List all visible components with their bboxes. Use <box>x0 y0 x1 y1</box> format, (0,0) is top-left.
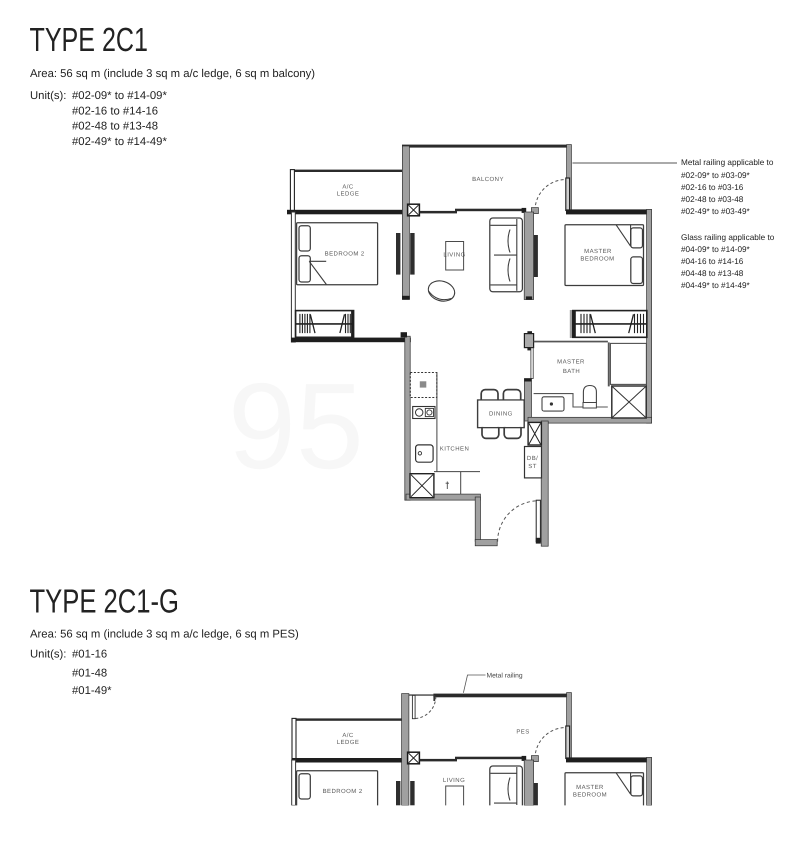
svg-text:BEDROOM 2: BEDROOM 2 <box>325 250 365 257</box>
svg-text:Unit(s):: Unit(s): <box>30 90 66 102</box>
svg-text:#04-48 to #13-48: #04-48 to #13-48 <box>681 269 744 278</box>
svg-text:A/C: A/C <box>342 732 354 739</box>
svg-text:TYPE 2C1: TYPE 2C1 <box>30 22 149 59</box>
svg-text:LEDGE: LEDGE <box>337 739 360 746</box>
svg-text:MASTER: MASTER <box>576 784 604 791</box>
svg-text:BEDROOM: BEDROOM <box>580 256 614 263</box>
svg-text:LIVING: LIVING <box>443 252 465 259</box>
svg-text:Glass railing applicable to: Glass railing applicable to <box>681 233 775 242</box>
svg-text:#02-49* to #03-49*: #02-49* to #03-49* <box>681 207 751 216</box>
svg-text:#01-48: #01-48 <box>72 667 107 679</box>
svg-text:#04-09* to #14-09*: #04-09* to #14-09* <box>681 245 751 254</box>
svg-text:95: 95 <box>228 358 364 494</box>
svg-text:TYPE 2C1-G: TYPE 2C1-G <box>30 584 180 621</box>
svg-text:#02-49* to #14-49*: #02-49* to #14-49* <box>72 136 167 148</box>
svg-text:BALCONY: BALCONY <box>472 176 504 183</box>
svg-text:#02-09* to #14-09*: #02-09* to #14-09* <box>72 90 167 102</box>
svg-text:MASTER: MASTER <box>584 248 612 255</box>
svg-text:#02-16 to #14-16: #02-16 to #14-16 <box>72 105 158 117</box>
svg-text:LEDGE: LEDGE <box>337 191 360 198</box>
svg-text:A/C: A/C <box>342 183 354 190</box>
svg-text:#02-48 to #03-48: #02-48 to #03-48 <box>681 195 744 204</box>
svg-text:#02-48 to #13-48: #02-48 to #13-48 <box>72 121 158 133</box>
svg-text:BEDROOM: BEDROOM <box>573 792 607 799</box>
svg-text:Unit(s):: Unit(s): <box>30 649 66 661</box>
svg-text:ST: ST <box>528 463 537 470</box>
svg-text:MASTER: MASTER <box>557 359 585 366</box>
svg-text:DB/: DB/ <box>527 455 538 462</box>
svg-text:BEDROOM 2: BEDROOM 2 <box>323 788 363 795</box>
svg-text:Metal railing applicable to: Metal railing applicable to <box>681 158 774 167</box>
svg-text:Metal railing: Metal railing <box>487 673 523 680</box>
svg-text:#02-09* to #03-09*: #02-09* to #03-09* <box>681 171 751 180</box>
svg-text:DINING: DINING <box>489 411 513 418</box>
svg-text:#01-16: #01-16 <box>72 649 107 661</box>
svg-text:Area: 56 sq m (include 3 sq m: Area: 56 sq m (include 3 sq m a/c ledge,… <box>30 629 299 641</box>
svg-text:PES: PES <box>516 728 529 735</box>
svg-text:#04-49* to #14-49*: #04-49* to #14-49* <box>681 281 751 290</box>
svg-text:#02-16 to #03-16: #02-16 to #03-16 <box>681 183 744 192</box>
svg-text:KITCHEN: KITCHEN <box>440 446 470 453</box>
svg-text:#04-16 to #14-16: #04-16 to #14-16 <box>681 257 744 266</box>
svg-text:#01-49*: #01-49* <box>72 685 112 697</box>
svg-text:BATH: BATH <box>563 368 580 375</box>
svg-text:Area: 56 sq m (include 3 sq m: Area: 56 sq m (include 3 sq m a/c ledge,… <box>30 68 315 80</box>
svg-text:LIVING: LIVING <box>443 777 465 784</box>
